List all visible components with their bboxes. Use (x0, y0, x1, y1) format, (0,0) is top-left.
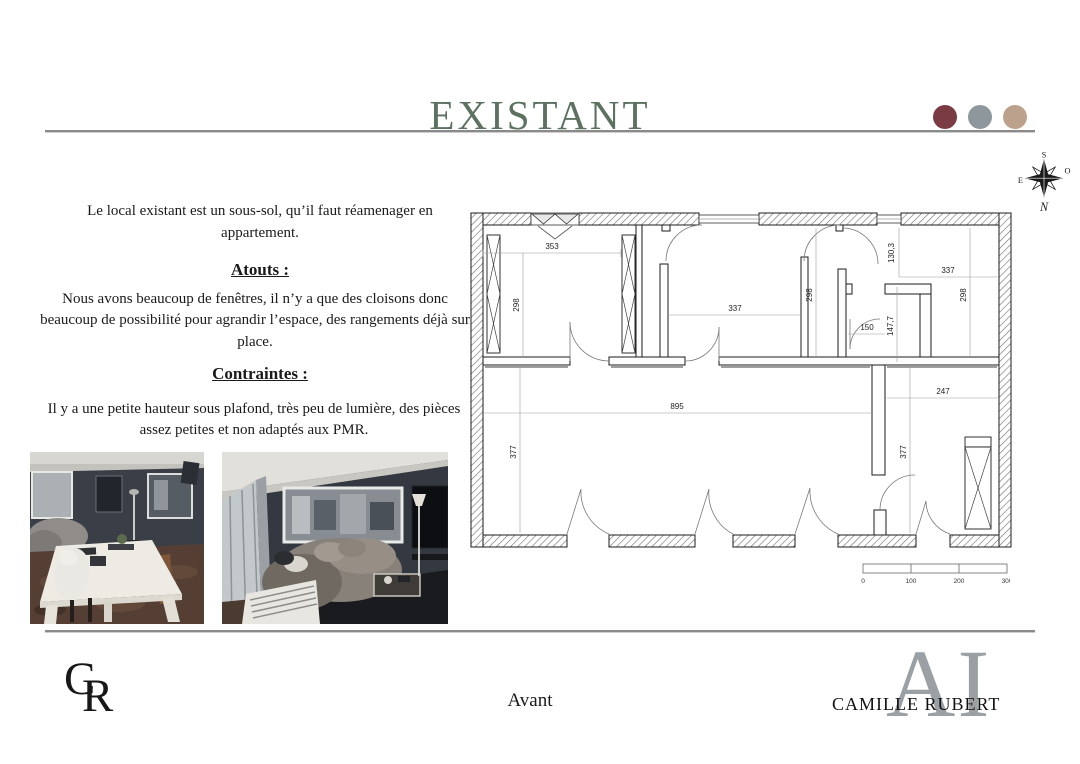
brand-block: AI CAMILLE RUBERT (828, 648, 1048, 758)
footer-caption: Avant (430, 690, 630, 712)
dim-353: 353 (545, 242, 559, 251)
photo-dining-room (30, 452, 204, 624)
dim-337-mid: 337 (728, 304, 742, 313)
header-divider (45, 130, 1035, 133)
compass-west-label: O (1065, 167, 1071, 176)
photo-living-room (222, 452, 448, 624)
presentation-page: EXISTANT S O E N Le local existant est u… (0, 0, 1080, 764)
plan-dimension-lines (483, 228, 998, 533)
dim-298-mid: 298 (805, 288, 814, 302)
brand-name: CAMILLE RUBERT (832, 694, 1000, 715)
cr-monogram-logo: C R (64, 656, 154, 746)
plan-partitions (483, 225, 999, 535)
palette-dot-gray (968, 105, 992, 129)
dim-247: 247 (936, 387, 950, 396)
dim-298-left: 298 (512, 298, 521, 312)
scale-100: 100 (906, 578, 917, 585)
compass-east-label: E (1018, 176, 1023, 185)
palette-dot-tan (1003, 105, 1027, 129)
dim-377-right: 377 (899, 445, 908, 459)
plan-posts (487, 235, 991, 529)
brand-watermark: AI (886, 636, 991, 732)
compass-rose: S O E N (1016, 146, 1072, 216)
scale-300: 300 (1002, 578, 1010, 585)
dim-298-right: 298 (959, 288, 968, 302)
contraintes-heading: Contraintes : (58, 364, 462, 384)
dim-337-top-right: 337 (941, 266, 955, 275)
intro-text: Le local existant est un sous-sol, qu’il… (58, 201, 462, 245)
contraintes-body: Il y a une petite hauteur sous plafond, … (36, 399, 472, 442)
dim-130-3: 130,3 (887, 242, 896, 263)
scale-200: 200 (954, 578, 965, 585)
plan-post-crosses (487, 235, 991, 529)
palette-dot-maroon (933, 105, 957, 129)
dim-150: 150 (860, 323, 874, 332)
compass-south-label: S (1042, 151, 1047, 160)
scale-bar: 0 100 200 300 (860, 562, 1010, 586)
dim-147-7: 147,7 (886, 315, 895, 336)
atouts-heading: Atouts : (58, 260, 462, 280)
monogram-letter-r: R (82, 673, 113, 720)
atouts-body: Nous avons beaucoup de fenêtres, il n’y … (40, 289, 470, 353)
plan-outer-walls (471, 213, 1011, 547)
floor-plan-drawing: 353 298 337 298 130,3 337 298 150 147,7 … (470, 212, 1012, 548)
compass-north-label: N (1039, 200, 1049, 214)
dim-895: 895 (670, 402, 684, 411)
palette-dots (933, 105, 1027, 129)
scale-0: 0 (861, 578, 865, 585)
dim-377-left: 377 (509, 445, 518, 459)
floor-plan: 353 298 337 298 130,3 337 298 150 147,7 … (470, 212, 1012, 548)
